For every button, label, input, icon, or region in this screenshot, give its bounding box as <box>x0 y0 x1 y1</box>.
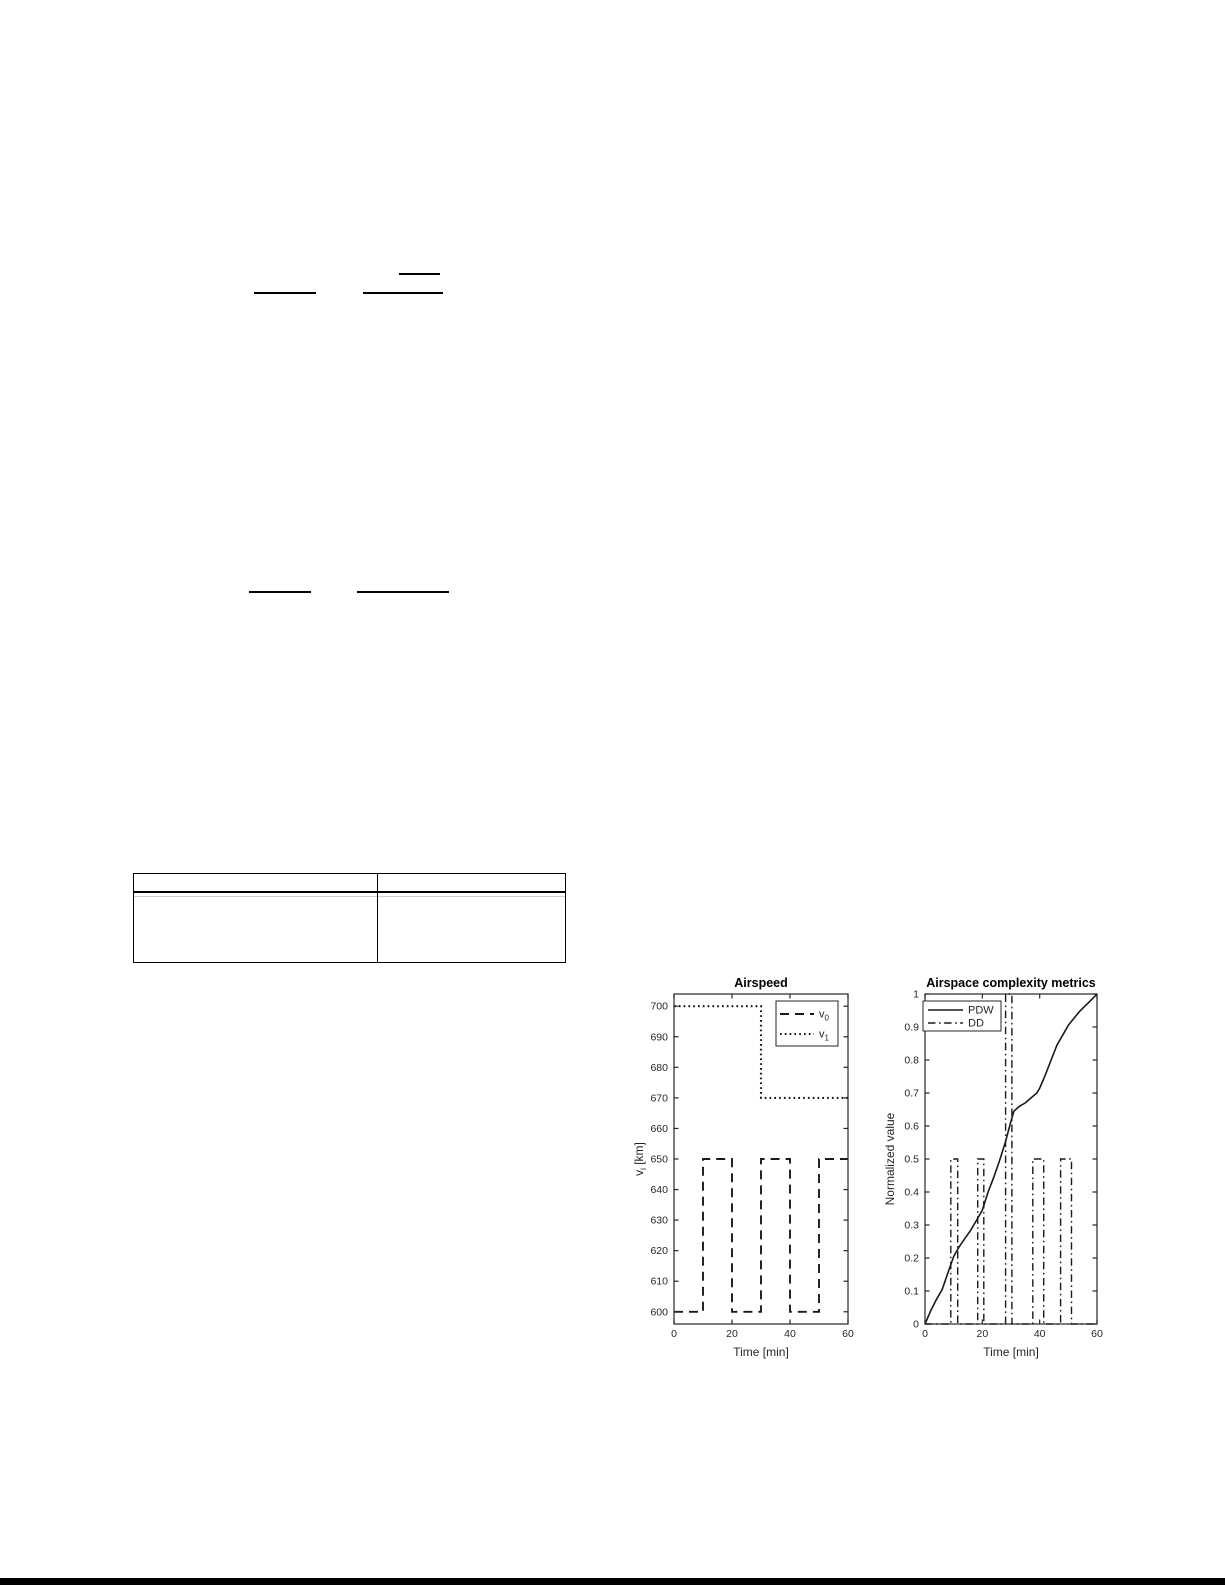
x-tick-label: 0 <box>671 1328 677 1340</box>
y-tick-label: 700 <box>650 1001 668 1013</box>
equation-fraction-bar <box>249 591 311 593</box>
x-axis-label: Time [min] <box>983 1345 1039 1359</box>
x-tick-label: 40 <box>784 1328 796 1340</box>
y-tick-label: 690 <box>650 1031 668 1043</box>
x-axis-label: Time [min] <box>733 1345 789 1359</box>
y-tick-label: 0.1 <box>904 1286 919 1298</box>
page-bottom-rule <box>0 1578 1225 1585</box>
chart-title: Airspace complexity metrics <box>926 976 1096 990</box>
y-tick-label: 1 <box>913 989 919 1001</box>
airspeed-chart: 0204060600610620630640650660670680690700… <box>630 958 875 1368</box>
y-tick-label: 0 <box>913 1319 919 1331</box>
y-tick-label: 670 <box>650 1092 668 1104</box>
equation-fraction-bar <box>363 292 443 294</box>
y-tick-label: 0.6 <box>904 1121 919 1133</box>
legend-label: DD <box>968 1018 984 1030</box>
results-table <box>133 873 566 963</box>
table-header-rule <box>134 891 565 893</box>
paper-page: 0204060600610620630640650660670680690700… <box>0 0 1225 1585</box>
y-tick-label: 0.7 <box>904 1088 919 1100</box>
y-tick-label: 660 <box>650 1123 668 1135</box>
y-tick-label: 0.8 <box>904 1055 919 1067</box>
chart-title: Airspeed <box>734 976 788 990</box>
y-tick-label: 0.5 <box>904 1154 919 1166</box>
equation-fraction-bar <box>254 292 316 294</box>
x-tick-label: 20 <box>976 1328 988 1340</box>
series-line <box>925 994 1097 1324</box>
table-header-rule-faint <box>134 896 565 897</box>
x-tick-label: 60 <box>842 1328 854 1340</box>
equation-fraction-bar <box>399 273 440 275</box>
x-tick-label: 20 <box>726 1328 738 1340</box>
y-tick-label: 0.9 <box>904 1022 919 1034</box>
y-tick-label: 620 <box>650 1245 668 1257</box>
series-line <box>674 1159 848 1312</box>
y-tick-label: 0.3 <box>904 1220 919 1232</box>
y-axis-label: Normalized value <box>883 1112 897 1205</box>
table-column-divider <box>377 874 379 962</box>
y-tick-label: 680 <box>650 1062 668 1074</box>
airspace-complexity-chart: 020406000.10.20.30.40.50.60.70.80.91Airs… <box>880 958 1125 1368</box>
equation-fraction-bar <box>357 591 449 593</box>
legend-label: PDW <box>968 1005 994 1017</box>
y-tick-label: 0.4 <box>904 1187 919 1199</box>
y-tick-label: 610 <box>650 1276 668 1288</box>
y-tick-label: 600 <box>650 1306 668 1318</box>
x-tick-label: 40 <box>1034 1328 1046 1340</box>
y-tick-label: 0.2 <box>904 1253 919 1265</box>
x-tick-label: 0 <box>922 1328 928 1340</box>
y-tick-label: 630 <box>650 1215 668 1227</box>
y-axis-label: vi [km] <box>632 1142 648 1176</box>
y-tick-label: 650 <box>650 1154 668 1166</box>
x-tick-label: 60 <box>1091 1328 1103 1340</box>
y-tick-label: 640 <box>650 1184 668 1196</box>
